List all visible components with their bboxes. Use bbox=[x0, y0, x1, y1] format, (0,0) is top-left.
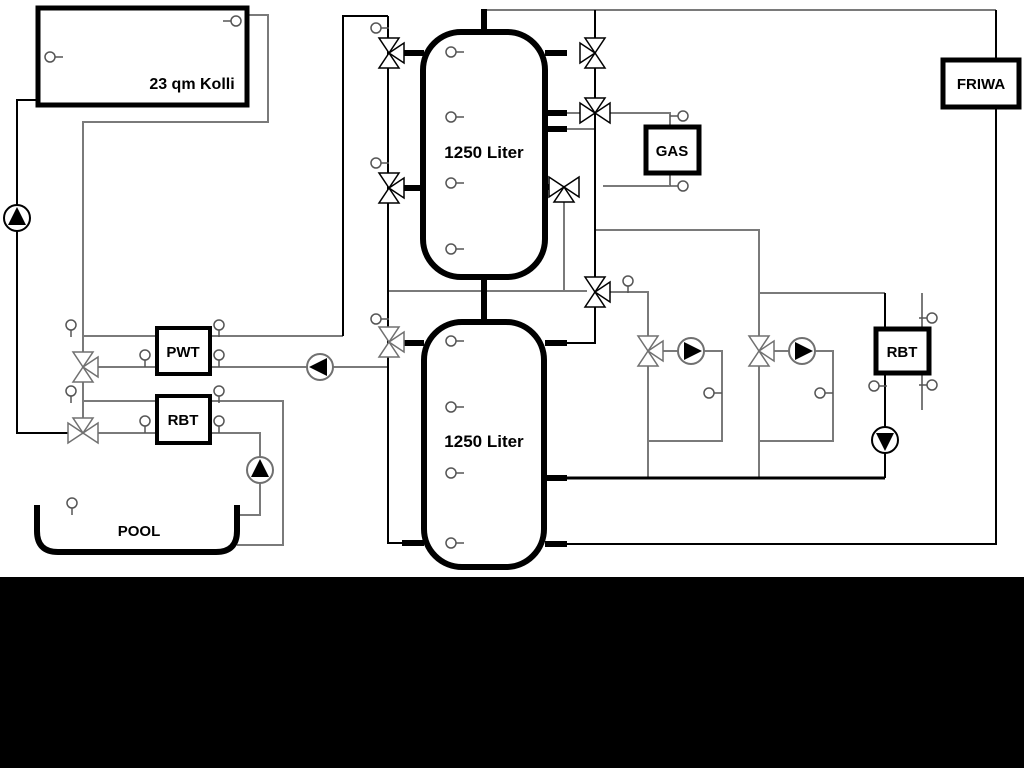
bottom-black-band bbox=[0, 577, 1024, 768]
collector-label: 23 qm Kolli bbox=[149, 76, 234, 93]
temperature-sensor-icon bbox=[446, 112, 456, 122]
temperature-sensor-icon bbox=[446, 336, 456, 346]
temperature-sensor-icon bbox=[66, 386, 76, 396]
temperature-sensor-icon bbox=[214, 416, 224, 426]
gas-label: GAS bbox=[656, 143, 689, 160]
temperature-sensor-icon bbox=[231, 16, 241, 26]
schematic-svg: 23 qm Kolli 1250 Liter 1250 Liter PWT RB… bbox=[0, 0, 1024, 768]
temperature-sensor-icon bbox=[66, 320, 76, 330]
temperature-sensor-icon bbox=[214, 350, 224, 360]
temperature-sensor-icon bbox=[214, 386, 224, 396]
temperature-sensor-icon bbox=[446, 244, 456, 254]
temperature-sensor-icon bbox=[927, 313, 937, 323]
temperature-sensor-icon bbox=[446, 47, 456, 57]
temperature-sensor-icon bbox=[446, 468, 456, 478]
rbt-right-label: RBT bbox=[887, 344, 918, 361]
temperature-sensor-icon bbox=[927, 380, 937, 390]
temperature-sensor-icon bbox=[446, 178, 456, 188]
temperature-sensor-icon bbox=[446, 402, 456, 412]
temperature-sensor-icon bbox=[704, 388, 714, 398]
temperature-sensor-icon bbox=[67, 498, 77, 508]
rbt-left-label: RBT bbox=[168, 412, 199, 429]
temperature-sensor-icon bbox=[140, 416, 150, 426]
tank-bottom-label: 1250 Liter bbox=[444, 432, 524, 451]
temperature-sensor-icon bbox=[371, 158, 381, 168]
temperature-sensor-icon bbox=[869, 381, 879, 391]
tank-top-label: 1250 Liter bbox=[444, 143, 524, 162]
temperature-sensor-icon bbox=[45, 52, 55, 62]
temperature-sensor-icon bbox=[140, 350, 150, 360]
temperature-sensor-icon bbox=[371, 314, 381, 324]
temperature-sensor-icon bbox=[678, 111, 688, 121]
temperature-sensor-icon bbox=[371, 23, 381, 33]
pwt-label: PWT bbox=[166, 344, 199, 361]
temperature-sensor-icon bbox=[678, 181, 688, 191]
temperature-sensor-icon bbox=[815, 388, 825, 398]
hydraulic-schematic-canvas: 23 qm Kolli 1250 Liter 1250 Liter PWT RB… bbox=[0, 0, 1024, 768]
temperature-sensor-icon bbox=[623, 276, 633, 286]
temperature-sensor-icon bbox=[446, 538, 456, 548]
pool-label: POOL bbox=[118, 523, 161, 540]
friwa-label: FRIWA bbox=[957, 76, 1005, 93]
temperature-sensor-icon bbox=[214, 320, 224, 330]
